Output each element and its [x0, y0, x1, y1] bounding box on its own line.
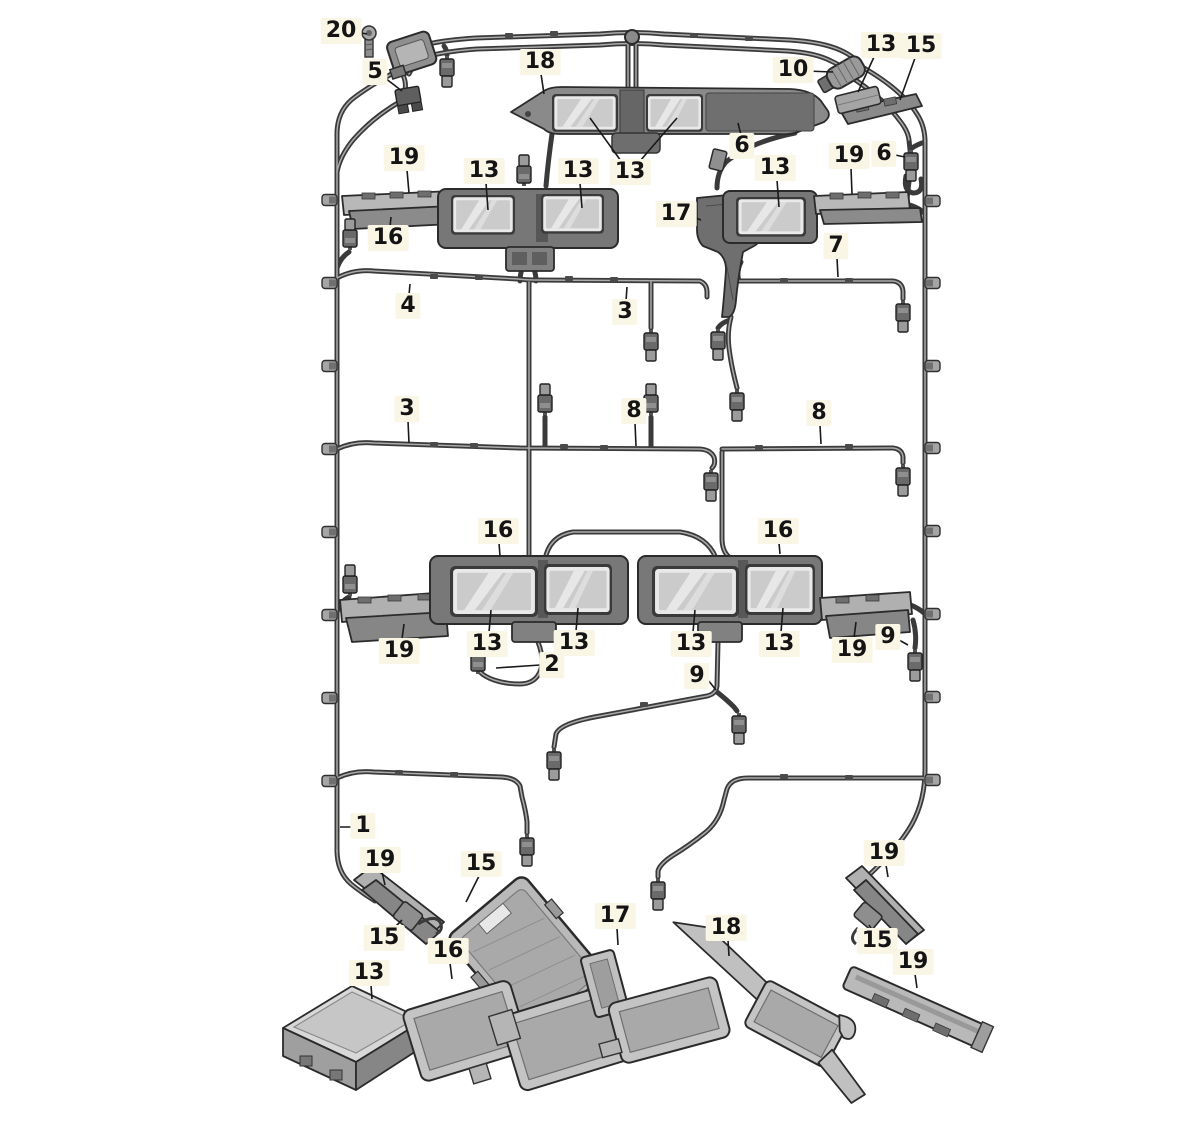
callout-label-15-5: 15 — [901, 33, 942, 59]
leader-line — [851, 168, 852, 194]
leader-line — [486, 183, 488, 210]
callout-label-9-31: 9 — [875, 624, 900, 650]
callout-label-13-38: 13 — [349, 960, 390, 986]
callout-label-19-30: 19 — [832, 637, 873, 663]
leader-line — [499, 543, 500, 556]
leader-line — [728, 940, 729, 956]
callout-label-10-3: 10 — [773, 57, 814, 83]
callout-label-19-41: 19 — [864, 840, 905, 866]
leader-line — [693, 610, 695, 632]
leader-line — [640, 118, 677, 161]
callout-label-3-18: 3 — [612, 299, 637, 325]
leader-line — [408, 421, 409, 443]
callout-label-15-42: 15 — [857, 928, 898, 954]
leader-line — [576, 608, 578, 631]
callout-label-19-24: 19 — [379, 638, 420, 664]
leader-line — [489, 610, 491, 632]
leader-line — [371, 985, 372, 999]
callout-label-1-33: 1 — [350, 813, 375, 839]
callout-label-17-14: 17 — [656, 201, 697, 227]
callout-label-18-40: 18 — [706, 915, 747, 941]
leader-line — [466, 876, 479, 902]
leader-line — [820, 425, 821, 444]
leader-line — [635, 423, 636, 446]
callout-label-15-36: 15 — [364, 925, 405, 951]
callout-label-13-9: 13 — [558, 158, 599, 184]
callout-label-8-21: 8 — [806, 400, 831, 426]
callout-label-13-11: 13 — [755, 155, 796, 181]
wiring-harness-diagram: 2051810131561913131313196171674338816161… — [0, 0, 1200, 1146]
leader-line — [407, 170, 409, 193]
leader-line — [496, 665, 540, 668]
callout-label-4-17: 4 — [395, 293, 420, 319]
callout-label-19-43: 19 — [893, 949, 934, 975]
callout-label-19-12: 19 — [829, 143, 870, 169]
leader-line — [781, 608, 783, 632]
leader-line — [580, 183, 582, 208]
callout-label-9-32: 9 — [684, 663, 709, 689]
leader-line — [402, 624, 404, 639]
leader-line — [617, 928, 618, 945]
callout-label-3-19: 3 — [394, 396, 419, 422]
callout-label-13-29: 13 — [759, 631, 800, 657]
leader-line — [886, 865, 888, 877]
callout-label-16-23: 16 — [758, 518, 799, 544]
leader-line — [895, 155, 905, 157]
callout-label-19-7: 19 — [384, 145, 425, 171]
leader-line — [382, 872, 385, 885]
leader-line — [858, 57, 874, 92]
leader-line — [541, 74, 544, 94]
callout-label-5-1: 5 — [362, 59, 387, 85]
leader-line — [779, 543, 780, 554]
callout-label-2-27: 2 — [539, 652, 564, 678]
leader-lines-layer — [0, 0, 1200, 1146]
leader-line — [385, 78, 402, 91]
callout-label-20-0: 20 — [321, 18, 362, 44]
callout-label-13-25: 13 — [467, 631, 508, 657]
callout-label-6-6: 6 — [729, 133, 754, 159]
leader-line — [590, 118, 621, 161]
callout-label-13-28: 13 — [671, 631, 712, 657]
leader-line — [854, 622, 856, 638]
callout-label-19-34: 19 — [360, 847, 401, 873]
leader-line — [777, 180, 779, 207]
callout-label-6-13: 6 — [871, 141, 896, 167]
callout-label-16-15: 16 — [368, 225, 409, 251]
callout-label-16-37: 16 — [428, 938, 469, 964]
callout-label-13-10: 13 — [610, 159, 651, 185]
callout-label-16-22: 16 — [478, 518, 519, 544]
callout-label-18-2: 18 — [520, 49, 561, 75]
callout-label-13-4: 13 — [861, 32, 902, 58]
leader-line — [900, 58, 915, 100]
callout-label-17-39: 17 — [595, 903, 636, 929]
callout-label-13-8: 13 — [464, 158, 505, 184]
leader-line — [450, 963, 452, 979]
leader-line — [915, 974, 917, 988]
callout-label-8-20: 8 — [621, 398, 646, 424]
callout-label-7-16: 7 — [823, 233, 848, 259]
leader-line — [837, 258, 838, 277]
callout-label-15-35: 15 — [461, 851, 502, 877]
